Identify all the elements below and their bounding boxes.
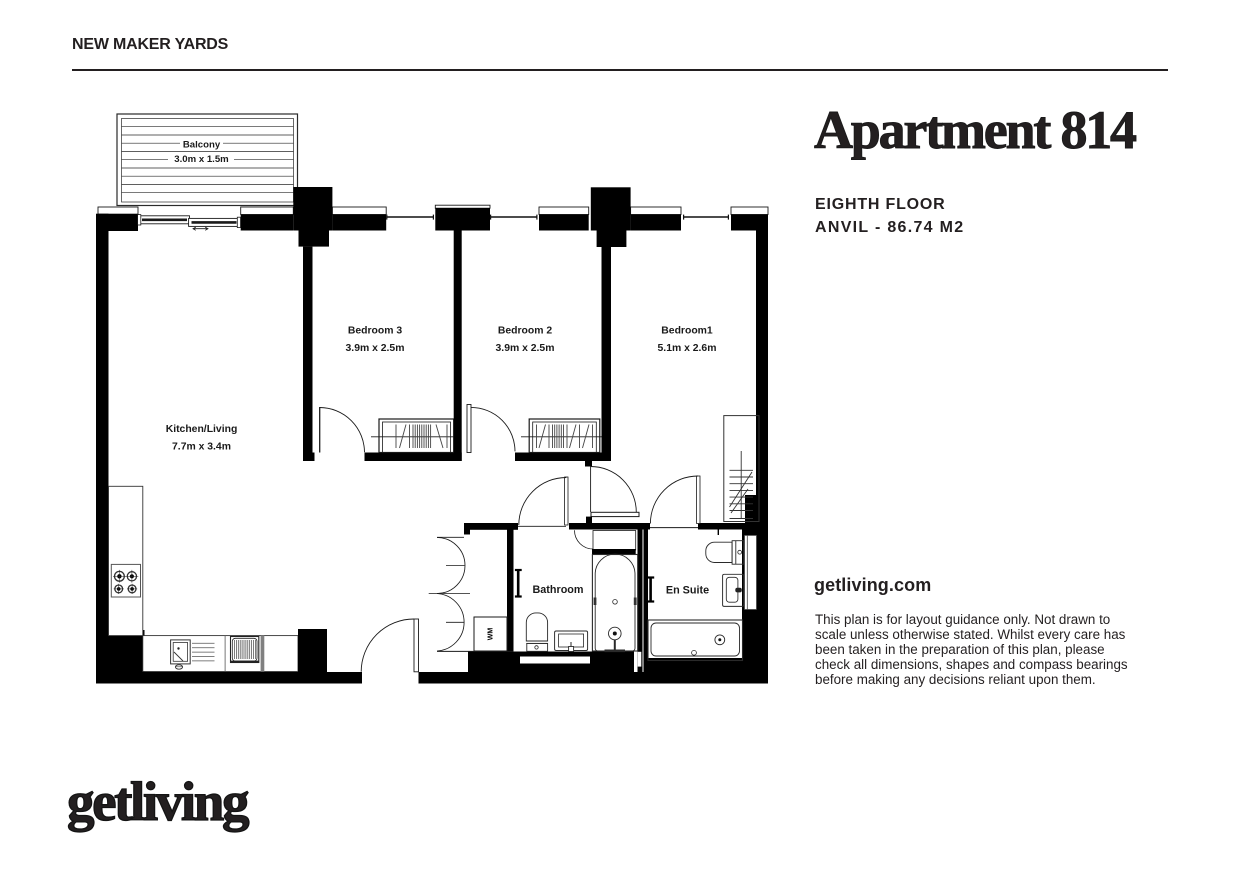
svg-text:7.7m x 3.4m: 7.7m x 3.4m [172,442,231,453]
svg-text:WM: WM [487,628,494,641]
svg-text:Balcony: Balcony [183,139,221,150]
svg-text:3.9m x 2.5m: 3.9m x 2.5m [496,343,555,354]
svg-text:Bathroom: Bathroom [533,584,584,596]
svg-text:En Suite: En Suite [666,585,709,597]
svg-text:Kitchen/Living: Kitchen/Living [166,424,238,435]
svg-text:3.0m x 1.5m: 3.0m x 1.5m [174,154,228,165]
svg-text:3.9m x 2.5m: 3.9m x 2.5m [346,343,405,354]
svg-text:Bedroom1: Bedroom1 [661,326,713,337]
svg-text:Bedroom 3: Bedroom 3 [348,326,402,337]
svg-text:Bedroom 2: Bedroom 2 [498,326,552,337]
svg-text:5.1m x 2.6m: 5.1m x 2.6m [658,343,717,354]
